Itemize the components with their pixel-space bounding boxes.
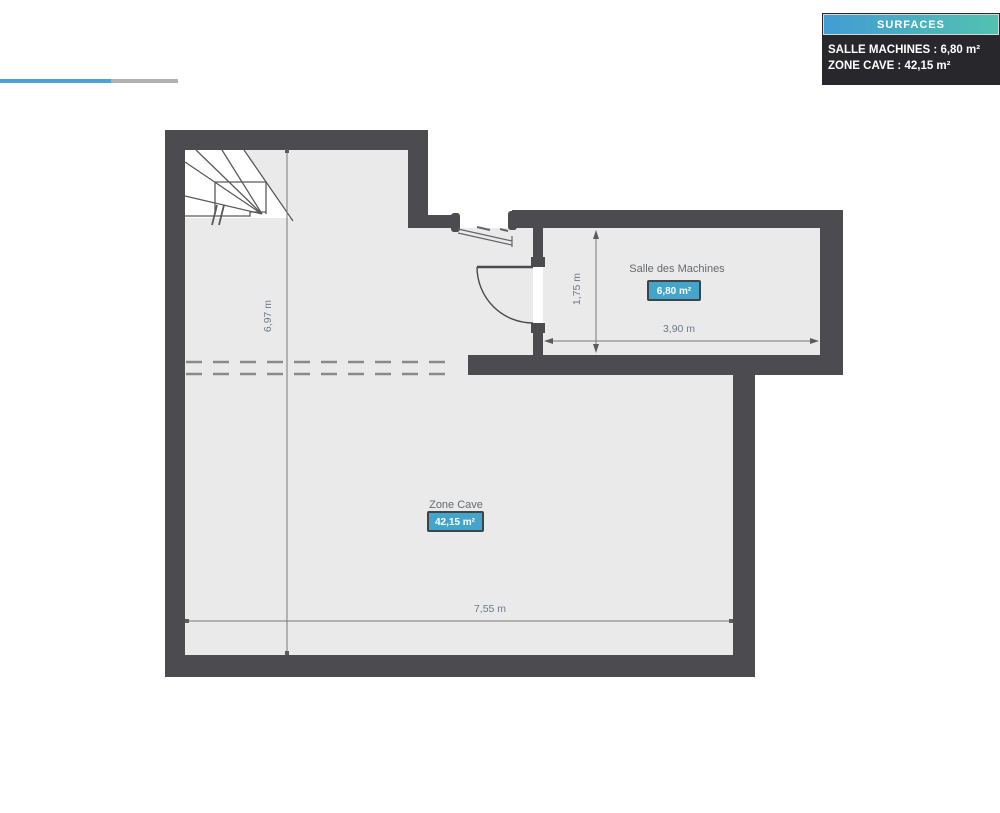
dim-label-machine-width: 3,90 m bbox=[663, 323, 695, 335]
dim-label-left-height: 6,97 m bbox=[262, 300, 274, 332]
wall-window-left bbox=[408, 215, 453, 228]
wall-machine-top bbox=[512, 210, 843, 228]
legend-body: SALLE MACHINES : 6,80 m² ZONE CAVE : 42,… bbox=[823, 35, 999, 79]
wall-top bbox=[165, 130, 428, 150]
wall-machine-bottom bbox=[468, 355, 843, 375]
legend-item-salle-machines: SALLE MACHINES : 6,80 m² bbox=[828, 42, 993, 58]
zone-cave-label: Zone Cave bbox=[429, 499, 483, 511]
dim-dot bbox=[729, 619, 733, 623]
legend-item-zone-cave: ZONE CAVE : 42,15 m² bbox=[828, 58, 993, 74]
legend-title: SURFACES bbox=[877, 19, 945, 31]
zone-cave-area-value: 42,15 m² bbox=[435, 517, 476, 528]
wall-bottom bbox=[165, 655, 755, 677]
wall-left bbox=[165, 130, 185, 677]
wall-machine-right bbox=[820, 210, 843, 375]
zone-cave-annotation: Zone Cave 42,15 m² bbox=[428, 499, 483, 531]
machine-room-label: Salle des Machines bbox=[629, 263, 725, 275]
dim-label-machine-height: 1,75 m bbox=[571, 273, 583, 305]
legend-scrollbar-thumb[interactable] bbox=[0, 79, 111, 83]
dim-dot bbox=[285, 651, 289, 655]
floor-plan-canvas: 6,97 m 1,75 m 3,90 m 7,55 m Salle des Ma… bbox=[0, 0, 1000, 813]
wall-cave-right bbox=[733, 375, 755, 677]
legend-scrollbar-track[interactable] bbox=[0, 79, 178, 83]
dim-dot bbox=[285, 149, 289, 153]
door-post-top bbox=[531, 257, 545, 267]
machine-room-area-value: 6,80 m² bbox=[657, 286, 692, 297]
floorplan-app: 6,97 m 1,75 m 3,90 m 7,55 m Salle des Ma… bbox=[0, 0, 1000, 813]
door-post-bottom bbox=[531, 323, 545, 333]
dim-label-cave-width: 7,55 m bbox=[474, 603, 506, 615]
surfaces-legend-panel: SURFACES SALLE MACHINES : 6,80 m² ZONE C… bbox=[822, 13, 1000, 85]
legend-header: SURFACES bbox=[823, 14, 999, 35]
dim-dot bbox=[185, 619, 189, 623]
